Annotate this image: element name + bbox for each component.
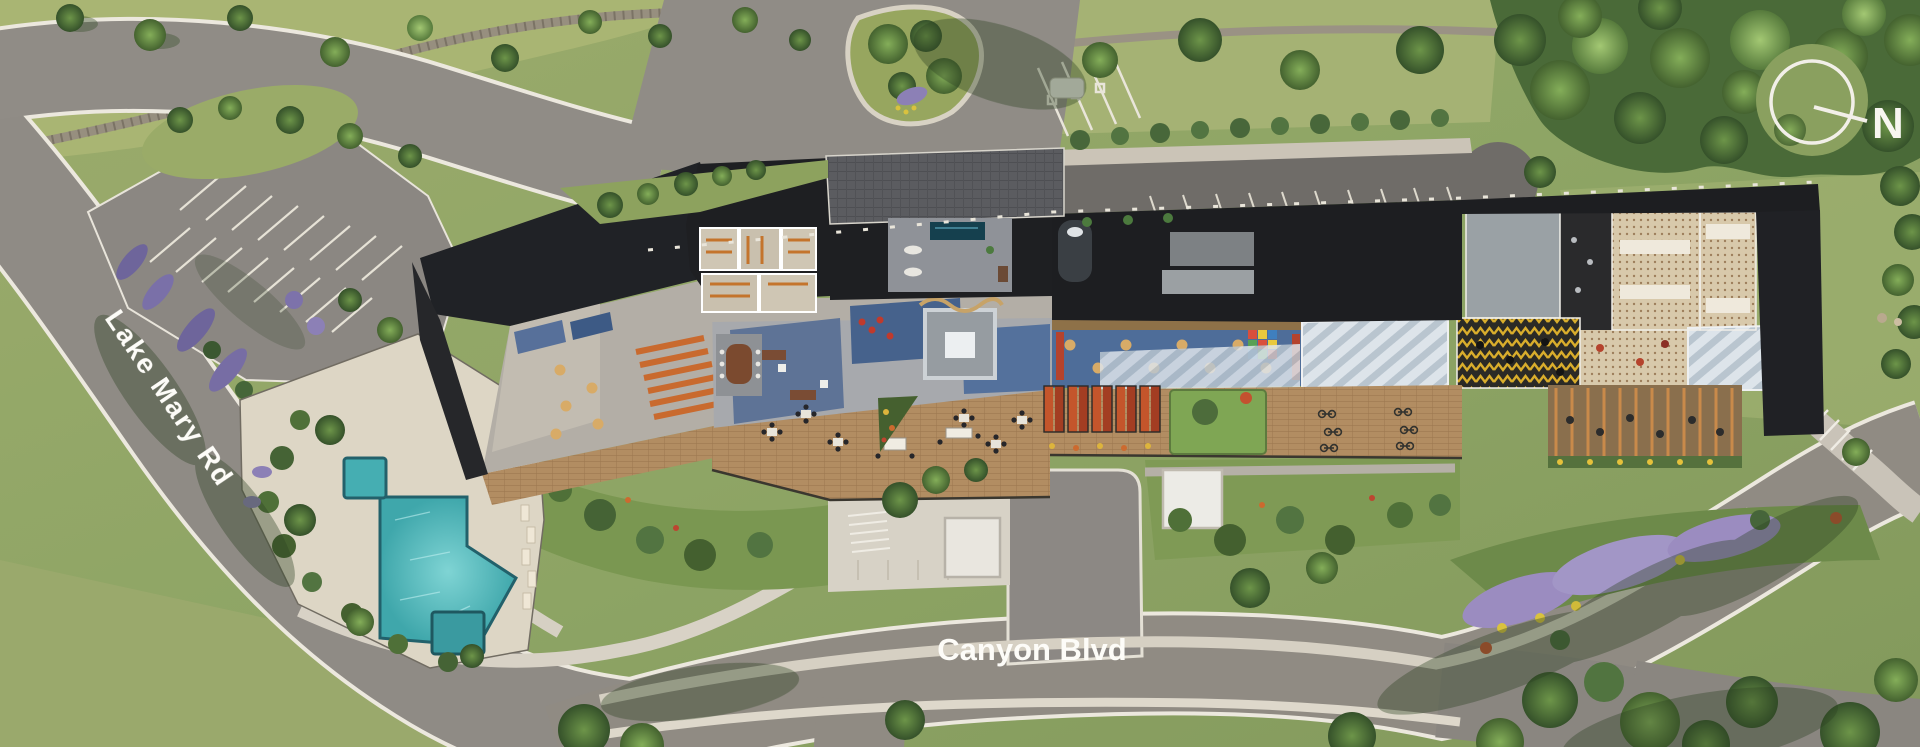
chevron-lounge — [1457, 318, 1580, 388]
restaurant-floors — [1457, 212, 1768, 390]
porte-cochere — [826, 148, 1064, 224]
road-label-canyon-blvd: Canyon Blvd — [937, 632, 1126, 667]
conference-table — [726, 344, 752, 384]
water-feature — [930, 222, 985, 240]
spa — [344, 458, 386, 498]
pergola-dining — [1548, 385, 1742, 468]
skylight-2 — [1688, 326, 1768, 390]
canopy-structure — [945, 518, 1000, 577]
skylight — [1302, 318, 1448, 390]
site-map-graphic: N Lake Mary Rd Canyon Blvd — [0, 0, 1920, 747]
compass-north-label: N — [1872, 99, 1904, 148]
site-plan: N Lake Mary Rd Canyon Blvd — [0, 0, 1920, 747]
